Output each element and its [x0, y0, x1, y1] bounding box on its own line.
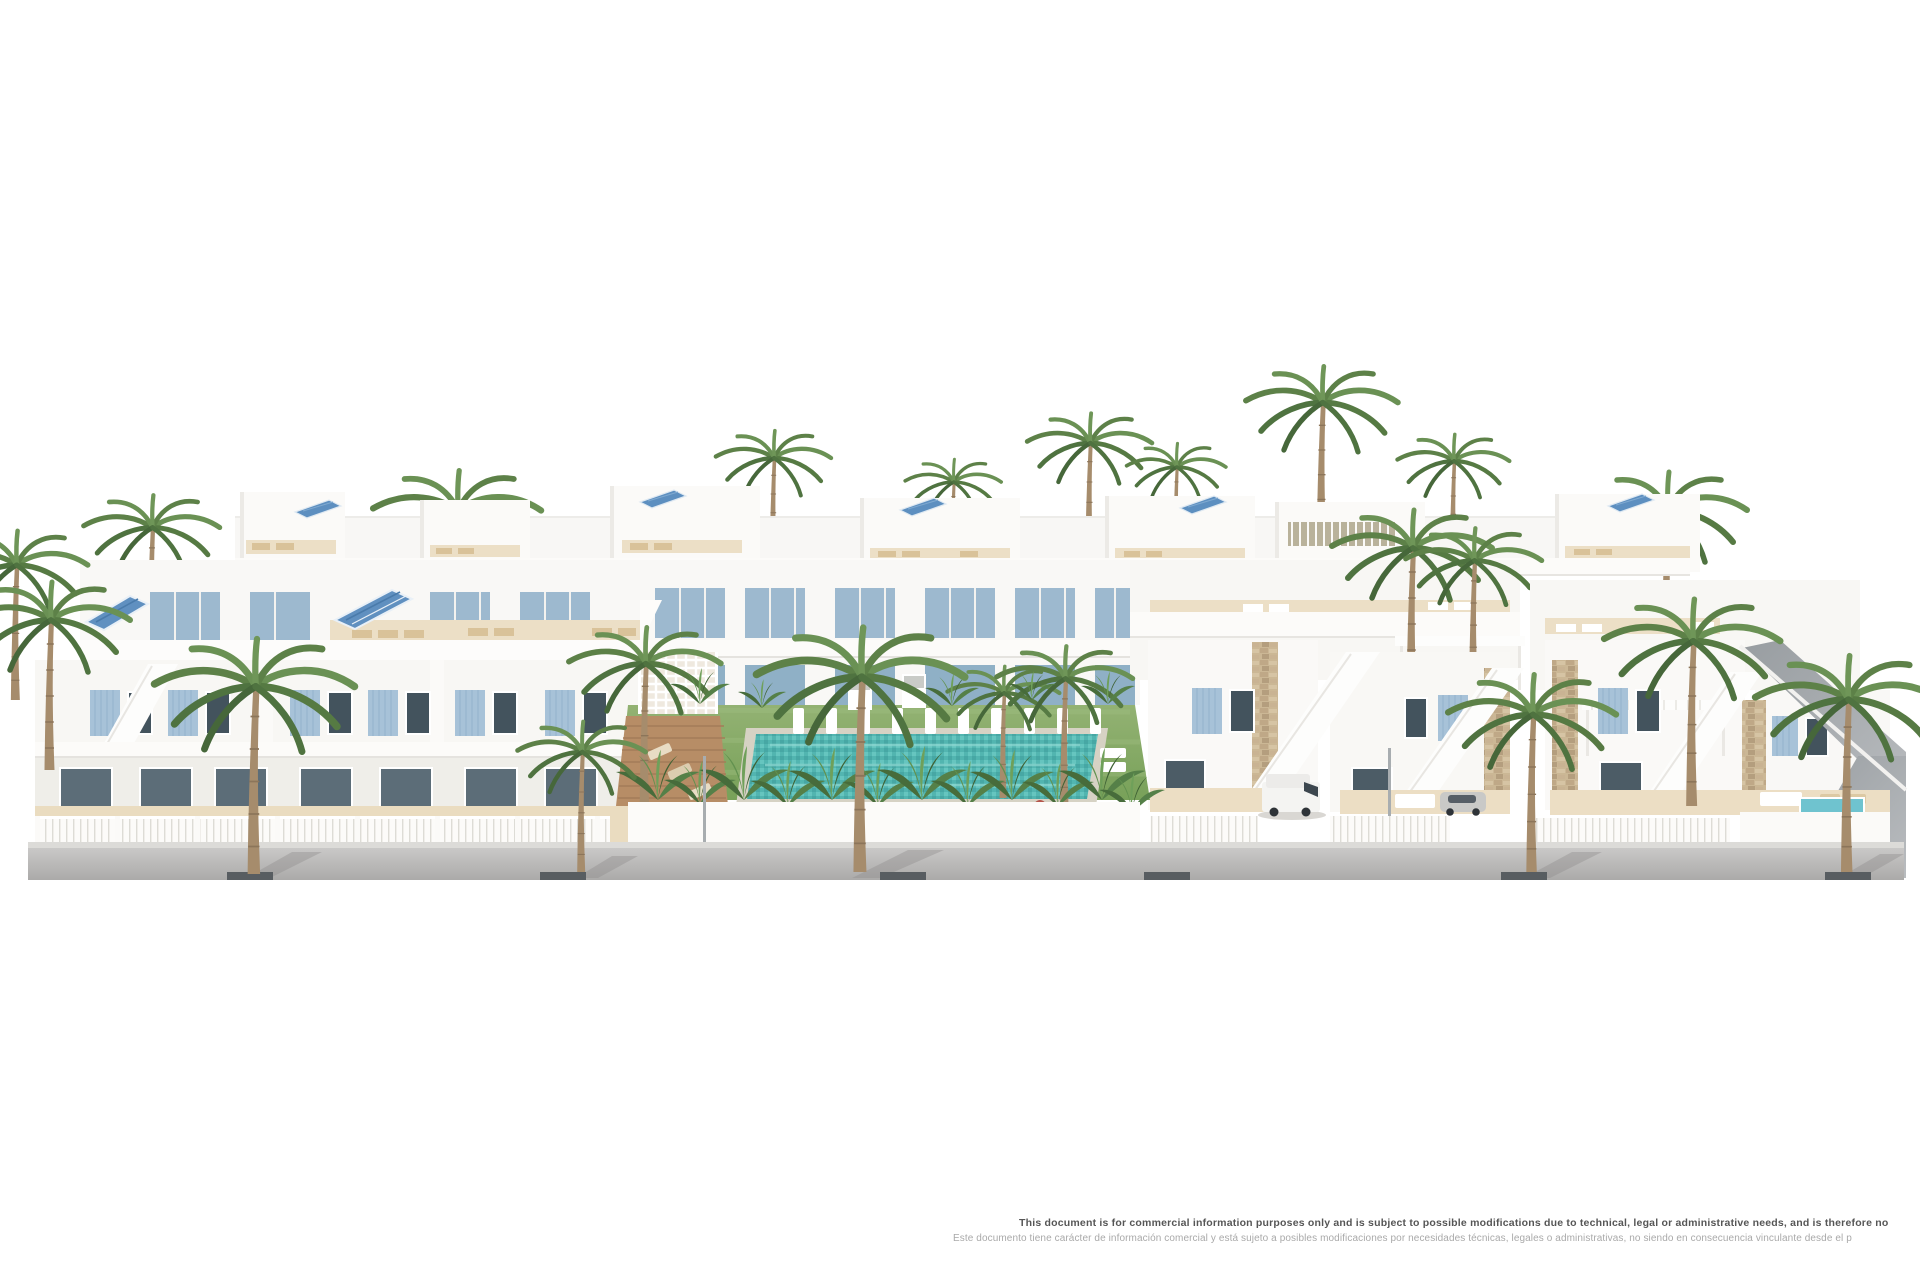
page: This document is for commercial informat… [0, 0, 1920, 1280]
disclaimer-line-es: Este documento tiene carácter de informa… [953, 1233, 1852, 1244]
slatted-fence [1530, 818, 1730, 846]
slatted-fence [1330, 816, 1450, 846]
disclaimer-line-en: This document is for commercial informat… [1019, 1217, 1888, 1229]
boundary-wall [1740, 812, 1890, 846]
architectural-render [0, 0, 1920, 1280]
slatted-fence [1150, 816, 1258, 846]
lamp-post [703, 756, 706, 846]
street [28, 842, 1904, 880]
ground-floor-glazing [60, 768, 597, 812]
left-apartment-block [35, 560, 640, 848]
